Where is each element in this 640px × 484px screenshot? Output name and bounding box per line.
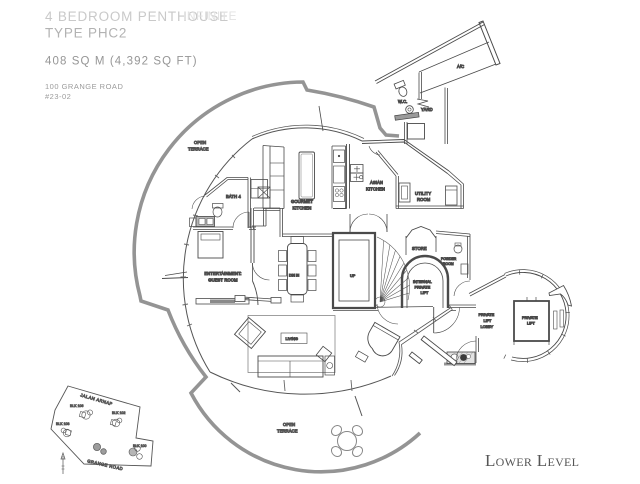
- svg-text:INFINITE: INFINITE: [183, 9, 237, 23]
- svg-text:W.C.: W.C.: [398, 99, 407, 104]
- svg-text:ROOM: ROOM: [417, 197, 431, 202]
- svg-text:PRIVATE: PRIVATE: [415, 286, 431, 290]
- svg-text:LIFT: LIFT: [484, 319, 492, 323]
- svg-text:YARD: YARD: [421, 107, 433, 112]
- svg-text:STORE: STORE: [412, 246, 427, 251]
- svg-text:PRIVATE: PRIVATE: [522, 316, 538, 320]
- svg-text:#23-02: #23-02: [45, 92, 71, 101]
- svg-text:ROOM: ROOM: [443, 262, 454, 266]
- svg-text:LIFT: LIFT: [421, 291, 429, 295]
- svg-text:POWDER: POWDER: [441, 257, 457, 261]
- svg-text:OPEN: OPEN: [194, 140, 206, 145]
- svg-text:INTERNAL: INTERNAL: [413, 280, 432, 284]
- svg-text:TERRACE: TERRACE: [188, 147, 209, 152]
- svg-text:A/C: A/C: [457, 64, 464, 69]
- svg-text:BLK 106: BLK 106: [70, 404, 83, 408]
- svg-text:Lower Level: Lower Level: [485, 451, 579, 470]
- svg-text:BLK 108: BLK 108: [56, 422, 69, 426]
- svg-text:DIN IN: DIN IN: [289, 274, 300, 278]
- svg-text:TERRACE: TERRACE: [277, 429, 298, 434]
- svg-text:100 GRANGE ROAD: 100 GRANGE ROAD: [45, 82, 123, 91]
- svg-text:TYPE PHC2: TYPE PHC2: [45, 26, 127, 41]
- svg-text:BATH 4: BATH 4: [226, 194, 242, 199]
- svg-text:UP: UP: [350, 274, 356, 278]
- svg-text:PRIVATE: PRIVATE: [479, 313, 495, 317]
- svg-text:UTILITY: UTILITY: [415, 191, 431, 196]
- svg-text:GOURMET: GOURMET: [291, 199, 313, 204]
- svg-text:408 SQ M (4,392 SQ FT): 408 SQ M (4,392 SQ FT): [45, 56, 198, 68]
- svg-text:LIVING: LIVING: [286, 337, 298, 341]
- svg-text:GUEST ROOM: GUEST ROOM: [208, 278, 238, 283]
- svg-text:KITCHEN: KITCHEN: [293, 206, 312, 211]
- svg-text:BLK 102: BLK 102: [112, 411, 125, 415]
- svg-text:ASIAN: ASIAN: [370, 180, 383, 185]
- svg-text:OPEN: OPEN: [283, 422, 295, 427]
- svg-text:ENTERTAINMENT:: ENTERTAINMENT:: [204, 271, 241, 276]
- svg-text:KITCHEN: KITCHEN: [366, 187, 385, 192]
- svg-text:LIFT: LIFT: [527, 322, 535, 326]
- svg-text:LOBBY: LOBBY: [481, 325, 494, 329]
